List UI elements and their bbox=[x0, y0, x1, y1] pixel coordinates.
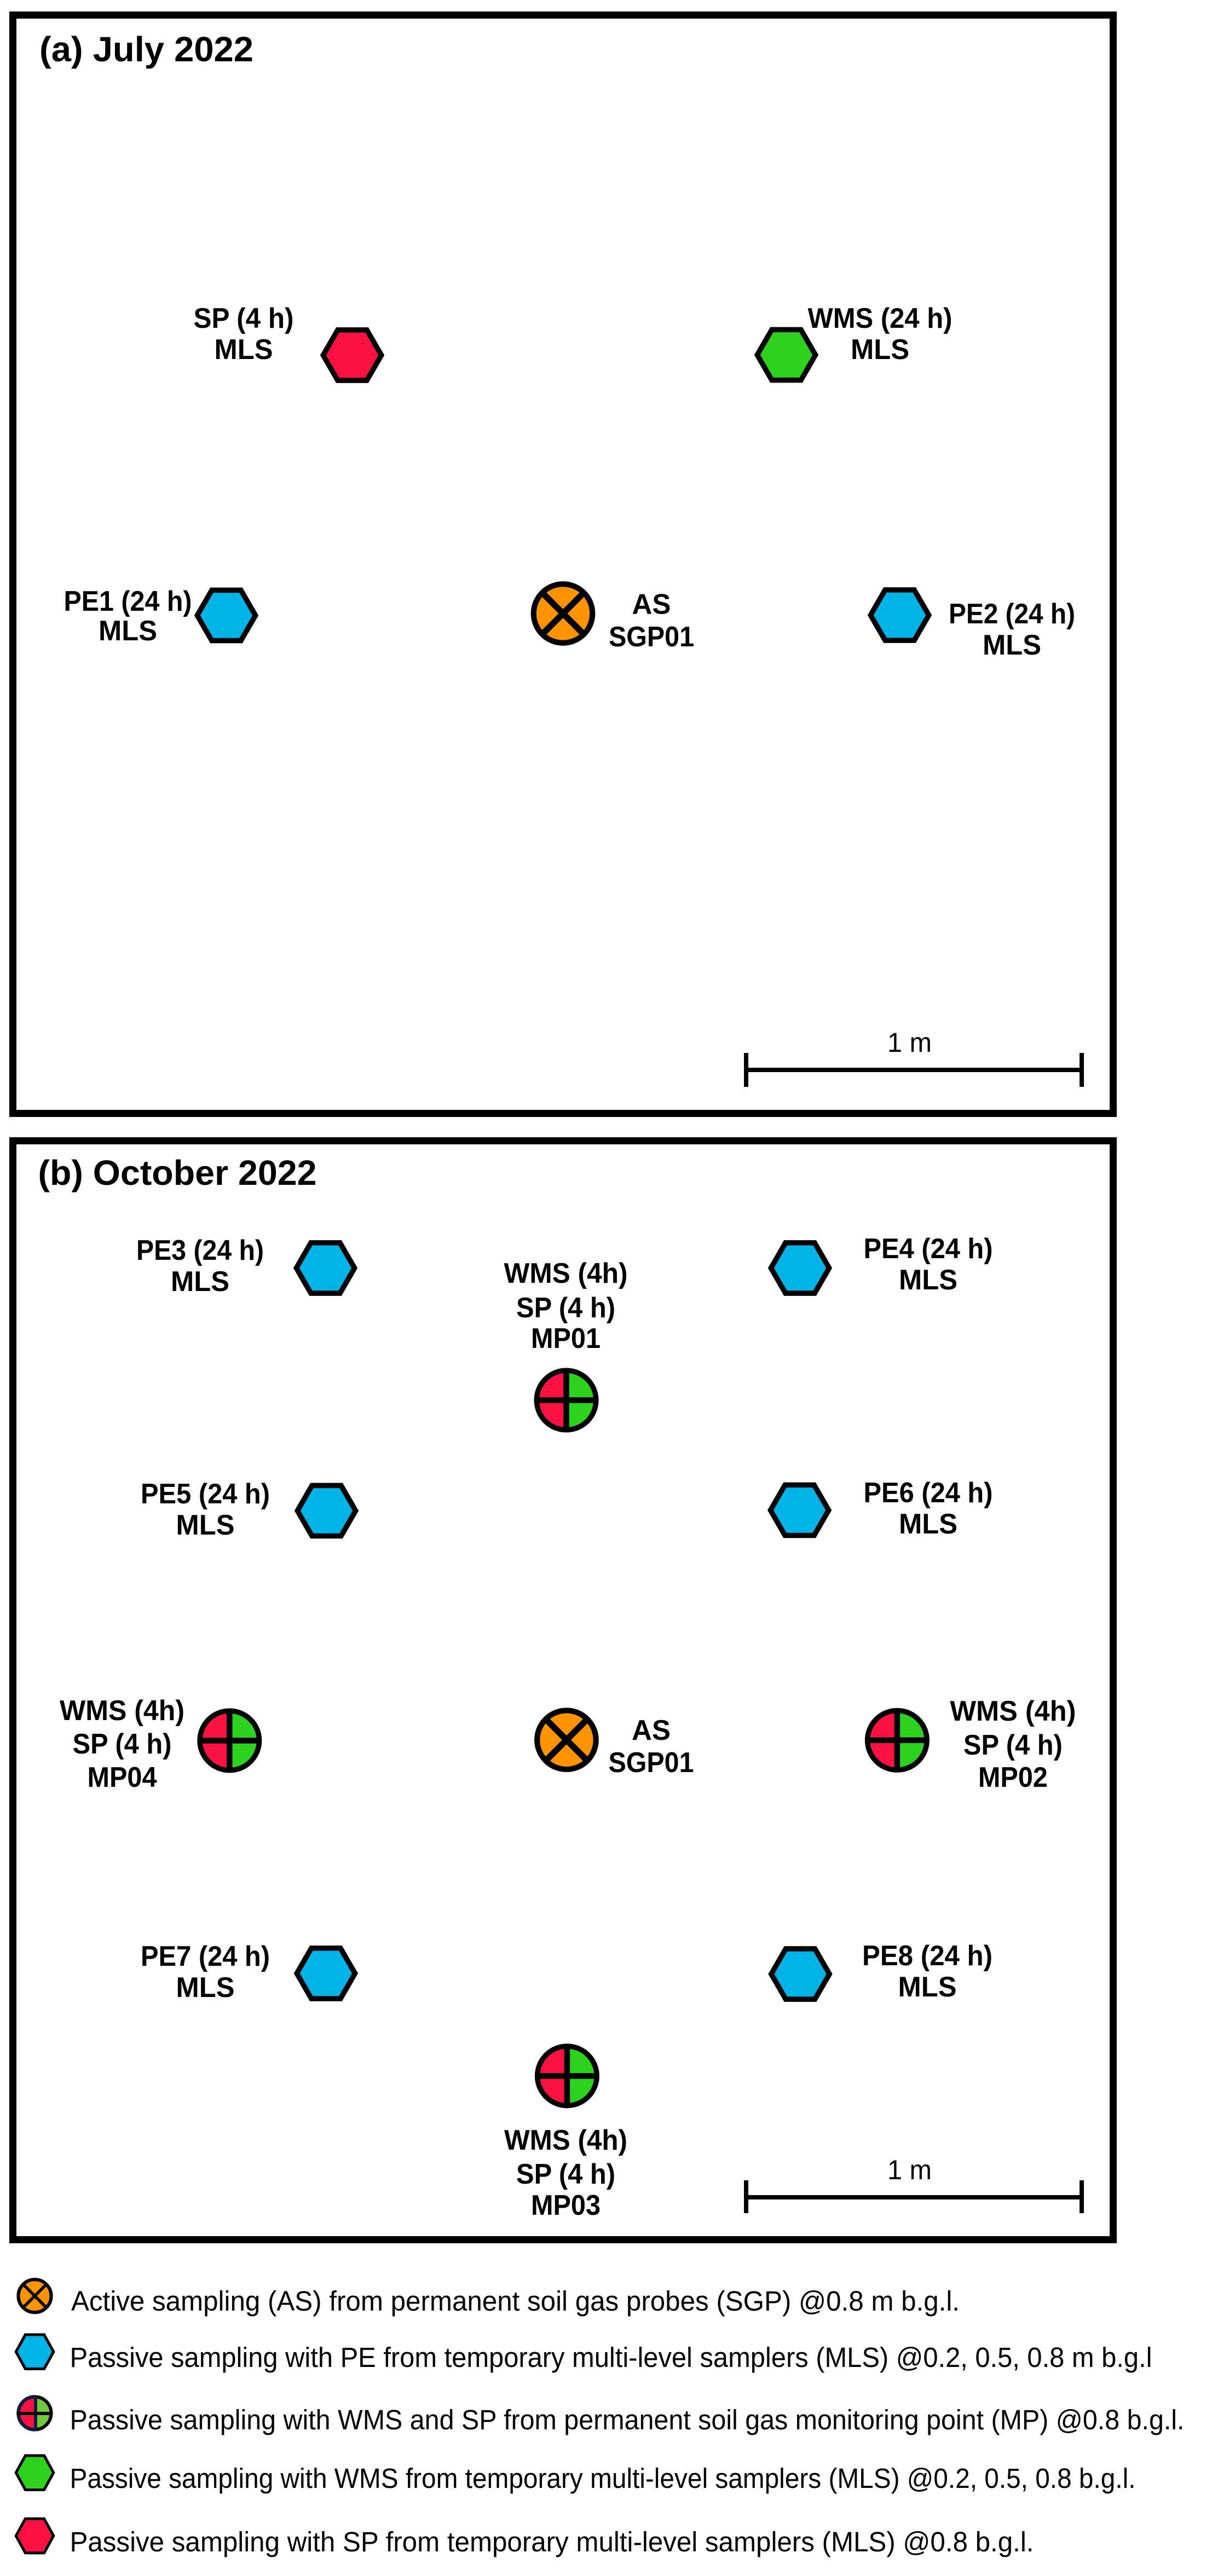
svg-text:WMS (4h): WMS (4h) bbox=[60, 1695, 184, 1727]
svg-text:Passive sampling with PE from: Passive sampling with PE from temporary … bbox=[70, 2342, 1152, 2373]
svg-text:MLS: MLS bbox=[983, 629, 1041, 661]
svg-text:PE3 (24 h): PE3 (24 h) bbox=[136, 1235, 264, 1266]
svg-text:SP (4 h): SP (4 h) bbox=[516, 2158, 615, 2190]
svg-text:Passive sampling with SP from: Passive sampling with SP from temporary … bbox=[70, 2526, 1034, 2557]
svg-text:MP04: MP04 bbox=[88, 1762, 157, 1793]
svg-text:WMS (4h): WMS (4h) bbox=[504, 2125, 627, 2156]
svg-text:Passive sampling with WMS from: Passive sampling with WMS from temporary… bbox=[70, 2463, 1136, 2494]
svg-text:MLS: MLS bbox=[215, 334, 273, 366]
svg-text:Active sampling (AS) from perm: Active sampling (AS) from permanent soil… bbox=[71, 2285, 960, 2317]
svg-text:WMS (24 h): WMS (24 h) bbox=[808, 303, 953, 334]
svg-text:MLS: MLS bbox=[176, 1509, 235, 1541]
svg-text:(a) July 2022: (a) July 2022 bbox=[39, 30, 253, 69]
svg-text:MLS: MLS bbox=[176, 1972, 235, 2004]
svg-text:PE1 (24 h): PE1 (24 h) bbox=[64, 586, 192, 617]
svg-text:PE5 (24 h): PE5 (24 h) bbox=[141, 1478, 270, 1510]
svg-text:MP02: MP02 bbox=[978, 1762, 1048, 1793]
svg-text:MLS: MLS bbox=[99, 615, 157, 647]
svg-text:Passive sampling with WMS and: Passive sampling with WMS and SP from pe… bbox=[70, 2404, 1185, 2435]
svg-text:PE7 (24 h): PE7 (24 h) bbox=[141, 1941, 270, 1972]
svg-text:PE2 (24 h): PE2 (24 h) bbox=[949, 598, 1075, 630]
svg-text:PE8 (24 h): PE8 (24 h) bbox=[862, 1940, 992, 1972]
svg-text:MP03: MP03 bbox=[531, 2190, 601, 2221]
svg-text:PE4 (24 h): PE4 (24 h) bbox=[864, 1233, 993, 1265]
svg-text:SP (4 h): SP (4 h) bbox=[516, 1292, 615, 1324]
svg-text:1 m: 1 m bbox=[887, 1027, 932, 1058]
svg-text:PE6 (24 h): PE6 (24 h) bbox=[864, 1477, 993, 1509]
svg-text:(b) October 2022: (b) October 2022 bbox=[38, 1153, 317, 1193]
svg-text:SP (4 h): SP (4 h) bbox=[963, 1729, 1063, 1761]
svg-text:1 m: 1 m bbox=[887, 2155, 932, 2185]
svg-text:MLS: MLS bbox=[851, 334, 909, 366]
svg-text:MLS: MLS bbox=[899, 1264, 957, 1296]
svg-text:MLS: MLS bbox=[898, 1971, 957, 2003]
svg-text:WMS (4h): WMS (4h) bbox=[950, 1695, 1076, 1727]
svg-text:SP (4 h): SP (4 h) bbox=[194, 303, 294, 334]
svg-text:AS: AS bbox=[632, 1715, 671, 1746]
svg-text:MLS: MLS bbox=[171, 1266, 229, 1298]
svg-text:MLS: MLS bbox=[899, 1508, 957, 1540]
svg-text:SP (4 h): SP (4 h) bbox=[73, 1728, 172, 1760]
svg-text:MP01: MP01 bbox=[531, 1323, 601, 1354]
svg-text:SGP01: SGP01 bbox=[609, 1747, 694, 1779]
svg-text:AS: AS bbox=[632, 589, 671, 621]
svg-text:WMS (4h): WMS (4h) bbox=[504, 1258, 628, 1289]
svg-text:SGP01: SGP01 bbox=[609, 621, 694, 653]
